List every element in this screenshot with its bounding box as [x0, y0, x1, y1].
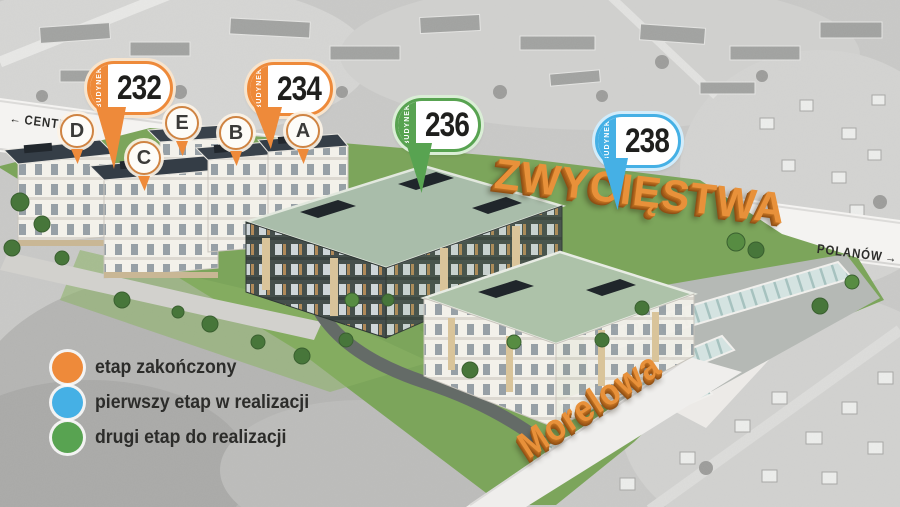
building-number: 232 [114, 64, 165, 112]
arrow-left-icon: ← [9, 110, 23, 126]
budynek-tab: BUDYNEK [250, 65, 268, 113]
legend-dot-blue [52, 387, 83, 418]
building-number: 234 [274, 65, 325, 113]
marker-pill: BUDYNEK 232 [87, 61, 173, 115]
legend: etap zakończony pierwszy etap w realizac… [52, 352, 325, 457]
section-badge-d[interactable]: D [60, 114, 94, 148]
building-marker-232[interactable]: BUDYNEK 232 [87, 61, 173, 115]
budynek-tab: BUDYNEK [398, 101, 416, 149]
legend-label: drugi etap do realizacji [95, 427, 286, 449]
section-badge-a[interactable]: A [286, 114, 320, 148]
section-badge-b[interactable]: B [219, 116, 253, 150]
building-marker-236[interactable]: BUDYNEK 236 [395, 98, 481, 152]
arrow-right-icon: → [884, 249, 898, 265]
badge-letter: D [60, 114, 94, 148]
building-marker-238[interactable]: BUDYNEK 238 [595, 114, 681, 168]
legend-dot-green [52, 422, 83, 453]
legend-dot-orange [52, 352, 83, 383]
legend-label: pierwszy etap w realizacji [95, 392, 309, 414]
badge-letter: C [127, 141, 161, 175]
development-site-map: ZWYCIĘSTWA Morelowa ←CENTRUM POLANÓW→ BU… [0, 0, 900, 507]
badge-letter: B [219, 116, 253, 150]
section-badge-e[interactable]: E [165, 106, 199, 140]
building-marker-234[interactable]: BUDYNEK 234 [247, 62, 333, 116]
building-number: 236 [422, 101, 473, 149]
badge-letter: E [165, 106, 199, 140]
section-badge-c[interactable]: C [127, 141, 161, 175]
budynek-tab: BUDYNEK [90, 64, 108, 112]
building-number: 238 [622, 117, 673, 165]
legend-item-second-stage: drugi etap do realizacji [52, 422, 325, 453]
legend-label: etap zakończony [95, 357, 236, 379]
badge-letter: A [286, 114, 320, 148]
legend-item-completed: etap zakończony [52, 352, 325, 383]
budynek-tab: BUDYNEK [598, 117, 616, 165]
legend-item-first-stage: pierwszy etap w realizacji [52, 387, 325, 418]
